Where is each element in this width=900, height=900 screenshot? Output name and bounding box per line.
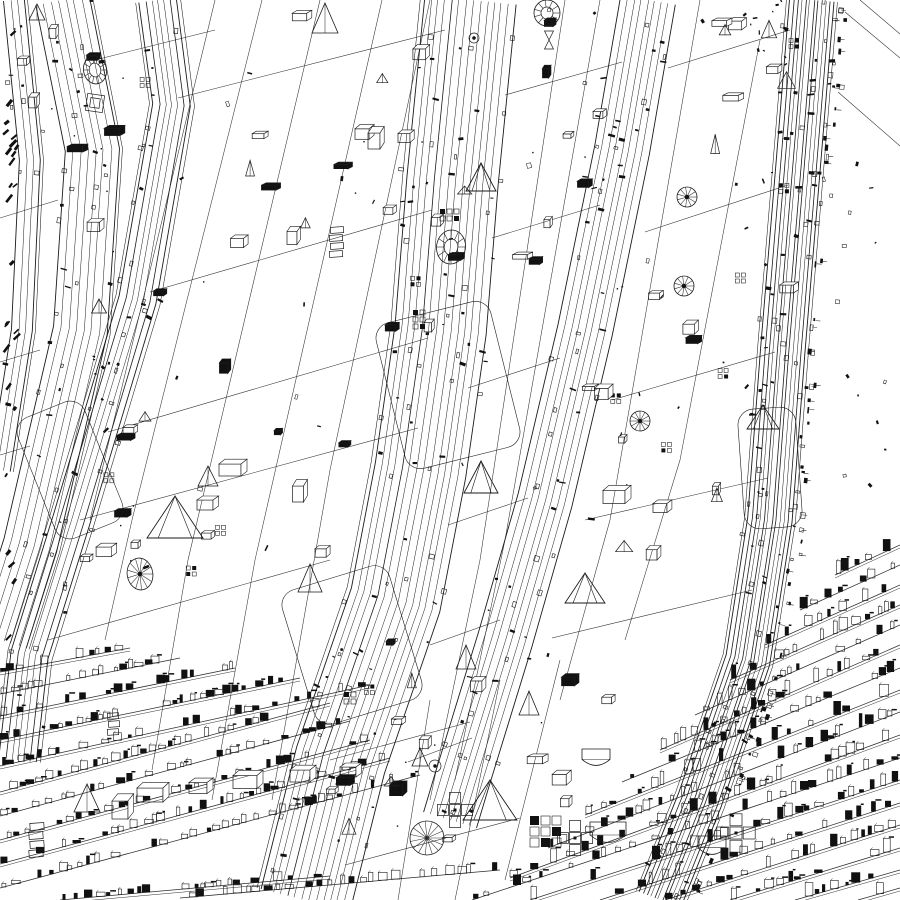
cross-far-right (552, 30, 790, 638)
landmark-bbox (653, 500, 672, 513)
landmark-bbox (233, 770, 263, 788)
landmark-bbox (287, 226, 301, 244)
landmark-bbox (290, 765, 316, 782)
landmark-bbox (219, 459, 247, 476)
landmark-tent (466, 163, 496, 191)
band-far-left (0, 0, 44, 472)
wireframe-scene (0, 0, 900, 900)
landmark-fan (630, 411, 650, 431)
landmark-grid (344, 692, 356, 704)
cluster-bottom-right (472, 539, 900, 900)
landmark-hg (545, 31, 554, 49)
landmark-target (429, 760, 441, 772)
landmark-bbox (137, 782, 169, 802)
wireframe-render-canvas (0, 0, 900, 900)
landmark-bbox (293, 480, 308, 502)
landmark-tent (463, 780, 517, 820)
landmark-stack (329, 227, 343, 258)
corner-top-right (838, 0, 900, 146)
landmark-wheel (410, 821, 444, 855)
landmark-tri (74, 784, 100, 812)
corner-top-left (17, 25, 100, 153)
landmark-tri (92, 299, 107, 313)
left-edge-ticks (2, 30, 21, 641)
strips-left (90, 0, 430, 800)
top-fringe (700, 0, 787, 59)
landmark-bbox (603, 485, 631, 503)
landmark-tri (412, 748, 428, 766)
landmark-tri (29, 4, 45, 20)
landmark-fan (125, 556, 156, 592)
landmark-tri (519, 691, 539, 715)
field-mid-right (583, 288, 750, 560)
landmark-fan (677, 187, 697, 207)
right-edge-sparse (830, 187, 887, 488)
landmark-grid (530, 816, 561, 847)
global-specks (21, 8, 859, 491)
landmark-dshape (582, 749, 610, 765)
landmark-fan (674, 276, 694, 296)
landmark-tent (464, 461, 498, 493)
strips-bottom (330, 660, 560, 900)
landmark-bbox (231, 235, 249, 248)
landmark-ring (434, 228, 467, 266)
landmark-tent (565, 573, 605, 603)
landmark-flower (717, 814, 755, 852)
